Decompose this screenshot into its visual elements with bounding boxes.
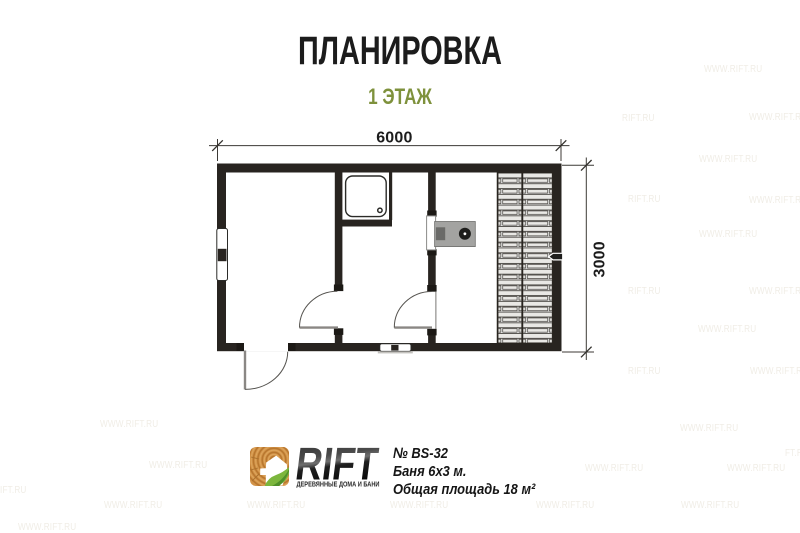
svg-text:ДЕРЕВЯННЫЕ ДОМА И БАНИ: ДЕРЕВЯННЫЕ ДОМА И БАНИ: [297, 480, 380, 489]
svg-text:6000: 6000: [376, 130, 412, 147]
svg-text:3000: 3000: [592, 241, 609, 277]
